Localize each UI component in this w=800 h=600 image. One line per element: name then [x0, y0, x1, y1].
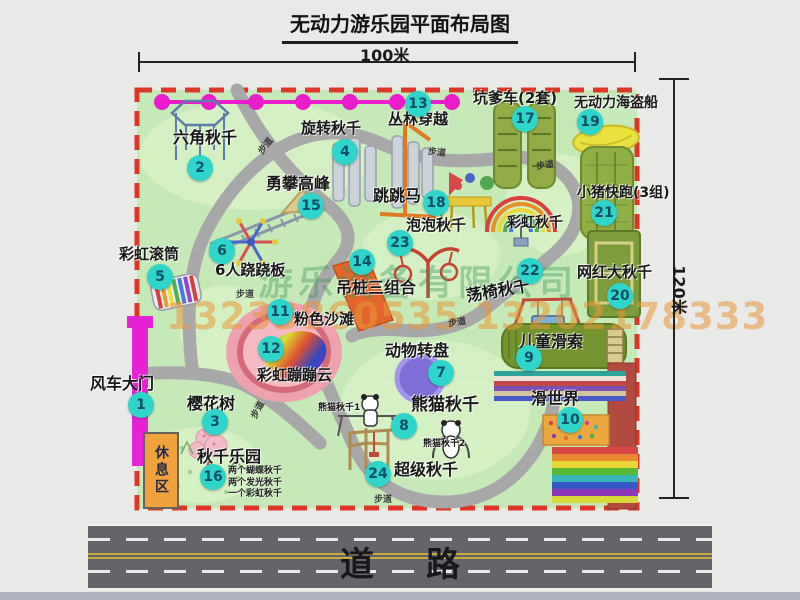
- item-badge-4: 4: [332, 139, 358, 165]
- dim-top-tick-left: [138, 52, 140, 72]
- item-label-16: 秋千乐园: [197, 449, 261, 465]
- item-subline: 两个发光秋千: [228, 478, 282, 490]
- item-label-21: 小猪快跑(3组): [577, 186, 670, 200]
- item-label-1: 风车大门: [90, 376, 154, 392]
- item-label-8: 熊猫秋千: [411, 397, 479, 414]
- item-badge-20: 20: [607, 283, 633, 309]
- item-subline: 一个彩虹秋千: [228, 489, 282, 501]
- item-badge-6: 6: [209, 238, 235, 264]
- item-badge-22: 22: [517, 258, 543, 284]
- rest-area-box: 休息区: [143, 432, 179, 509]
- dim-width-label: 100米: [360, 42, 409, 66]
- item-label-7: 动物转盘: [385, 343, 449, 359]
- item-badge-12: 12: [258, 336, 284, 362]
- item-label-5: 彩虹滚筒: [119, 247, 179, 262]
- footpath-label-2: 步道: [535, 157, 555, 172]
- item-label-15: 勇攀高峰: [266, 176, 330, 192]
- rest-area-label: 休息区: [151, 445, 171, 496]
- item-badge-14: 14: [349, 249, 375, 275]
- item-badge-10: 10: [557, 407, 583, 433]
- page-title: 无动力游乐园平面布局图: [282, 8, 518, 44]
- item-badge-18: 18: [423, 190, 449, 216]
- footpath-label-6: 步道: [374, 492, 392, 505]
- extra-label-1: 熊猫秋千1: [318, 404, 360, 413]
- item-label-10: 滑世界: [531, 391, 579, 407]
- item-label-12: 彩虹蹦蹦云: [257, 368, 332, 383]
- item-badge-13: 13: [405, 91, 431, 117]
- item-label-24: 超级秋千: [394, 462, 458, 478]
- item-label-18: 跳跳马: [373, 188, 421, 204]
- footpath-label-3: 步道: [236, 287, 254, 300]
- item-label-19: 无动力海盗船: [574, 96, 658, 110]
- item-label-23: 泡泡秋千: [406, 218, 466, 233]
- item-label-6: 6人跷跷板: [215, 263, 285, 278]
- bottom-strip: [0, 592, 800, 600]
- extra-label-2: 熊猫秋千2: [423, 440, 465, 449]
- item-badge-3: 3: [202, 409, 228, 435]
- item-badge-24: 24: [365, 461, 391, 487]
- item-label-20: 网红大秋千: [577, 265, 652, 280]
- item-badge-5: 5: [147, 264, 173, 290]
- footpath-label-1: 步道: [427, 144, 446, 159]
- dim-top-tick-right: [634, 52, 636, 72]
- item-label-11: 粉色沙滩: [294, 312, 354, 327]
- item-badge-21: 21: [591, 200, 617, 226]
- dim-right-tick-bottom: [659, 497, 689, 499]
- road-label: 道路: [88, 537, 712, 586]
- item-label-17: 坑爹车(2套): [473, 91, 557, 106]
- item-badge-9: 9: [516, 345, 542, 371]
- item-badge-19: 19: [577, 109, 603, 135]
- footpath-label-4: 步道: [447, 314, 467, 329]
- item-sublist-16: 两个蝴蝶秋千两个发光秋千一个彩虹秋千: [228, 466, 282, 501]
- dim-height-label: 120米: [669, 265, 693, 314]
- dim-right-tick-top: [659, 78, 689, 80]
- item-badge-16: 16: [200, 464, 226, 490]
- item-badge-2: 2: [187, 155, 213, 181]
- item-badge-23: 23: [387, 230, 413, 256]
- item-label-4: 旋转秋千: [301, 121, 361, 136]
- road: 道路: [88, 524, 712, 590]
- park-plan-image: 游乐设备有限公司 13233860535 13202178333 休息区 风车大…: [0, 0, 800, 600]
- item-badge-8: 8: [391, 413, 417, 439]
- item-badge-15: 15: [298, 193, 324, 219]
- item-badge-7: 7: [428, 360, 454, 386]
- item-badge-11: 11: [267, 299, 293, 325]
- extra-label-0: 彩虹秋千: [507, 216, 563, 230]
- item-label-14: 吊桩三组合: [336, 280, 416, 296]
- item-label-2: 六角秋千: [173, 130, 237, 146]
- item-badge-1: 1: [128, 392, 154, 418]
- item-subline: 两个蝴蝶秋千: [228, 466, 282, 478]
- item-badge-17: 17: [512, 106, 538, 132]
